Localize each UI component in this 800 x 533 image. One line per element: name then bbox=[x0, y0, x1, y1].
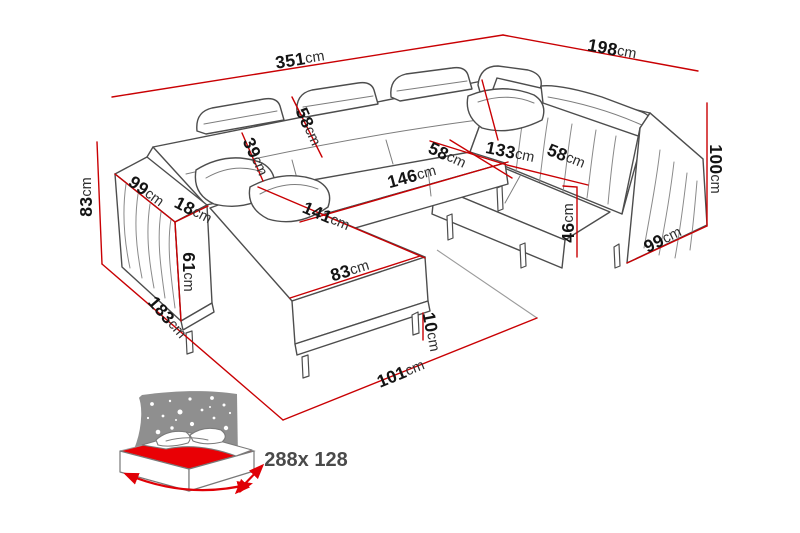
sleeping-function-bed-icon: 288x 128 bbox=[108, 389, 348, 492]
sofa-dimension-diagram: 351cm 198cm 83cm 99cm 18cm 61cm 183cm 39… bbox=[0, 0, 800, 533]
sleeping-area-size-label: 288x 128 bbox=[264, 449, 347, 471]
dimension-label-leg-height: 10cm bbox=[419, 311, 446, 353]
dimension-label-total-width: 351cm bbox=[274, 45, 326, 72]
dimension-label-side-height-left: 83cm bbox=[76, 177, 96, 216]
dimension-label-back-height-right: 100cm bbox=[706, 144, 726, 193]
dimension-label-seat-height: 46cm bbox=[558, 203, 578, 242]
dimline-83-left bbox=[97, 142, 102, 264]
dimension-label-total-depth-right: 198cm bbox=[586, 34, 638, 63]
dimension-label-arm-height: 61cm bbox=[179, 252, 199, 291]
dimension-label-front-floor-width: 101cm bbox=[374, 354, 427, 391]
diagram-canvas: 351cm 198cm 83cm 99cm 18cm 61cm 183cm 39… bbox=[0, 0, 800, 533]
